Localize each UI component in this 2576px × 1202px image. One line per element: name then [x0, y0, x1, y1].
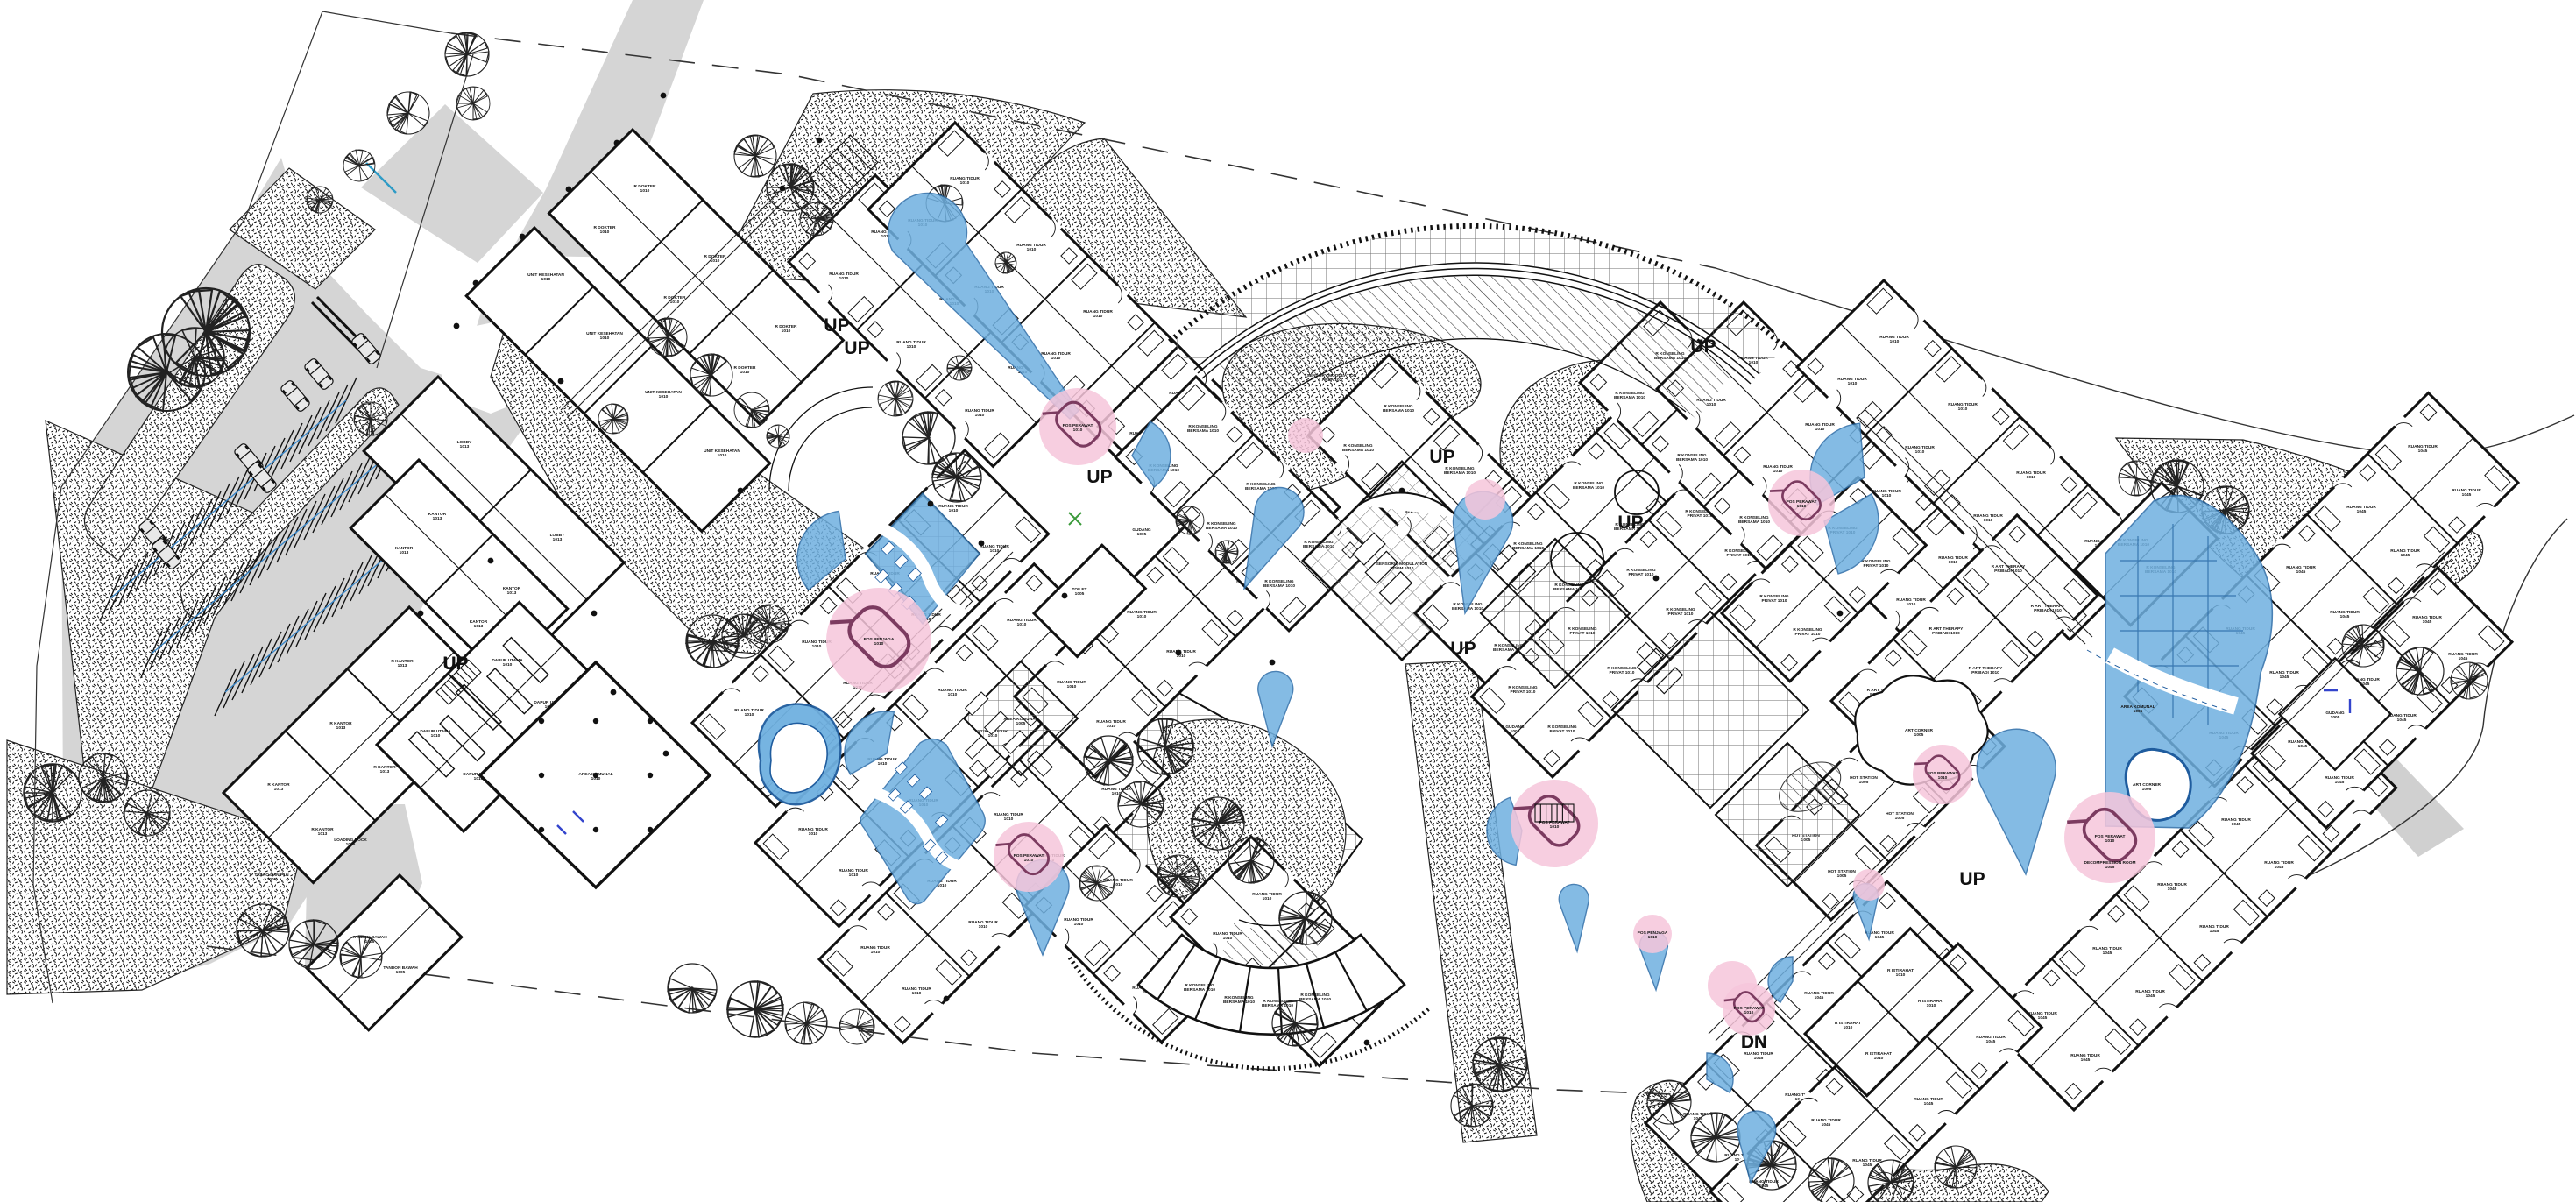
svg-text:UP: UP [1429, 447, 1454, 467]
svg-text:R KONSELINGBERSAMA 1010: R KONSELINGBERSAMA 1010 [1187, 424, 1219, 434]
svg-text:R KONSELINGBERSAMA 1010: R KONSELINGBERSAMA 1010 [1299, 993, 1331, 1002]
svg-text:R KONSELINGPRIVAT 1010: R KONSELINGPRIVAT 1010 [1861, 559, 1891, 569]
svg-text:R KONSELINGBERSAMA 1010: R KONSELINGBERSAMA 1010 [1444, 466, 1476, 476]
svg-text:R KONSELINGPRIVAT 1010: R KONSELINGPRIVAT 1010 [1626, 568, 1656, 577]
svg-text:R KONSELINGPRIVAT 1010: R KONSELINGPRIVAT 1010 [1547, 725, 1577, 734]
svg-text:UP: UP [1617, 513, 1643, 533]
svg-text:R KONSELINGPRIVAT 1010: R KONSELINGPRIVAT 1010 [1666, 607, 1695, 617]
svg-text:R KONSELINGBERSAMA 1010: R KONSELINGBERSAMA 1010 [1263, 579, 1295, 589]
svg-text:UP: UP [1450, 639, 1476, 659]
svg-text:R KONSELINGBERSAMA 1010: R KONSELINGBERSAMA 1010 [1383, 404, 1414, 414]
svg-text:UP: UP [442, 654, 468, 674]
svg-text:DN: DN [1741, 1032, 1767, 1052]
svg-text:R KONSELINGBERSAMA 1010: R KONSELINGBERSAMA 1010 [1223, 995, 1255, 1005]
svg-text:R KONSELINGPRIVAT 1010: R KONSELINGPRIVAT 1010 [1793, 627, 1822, 637]
svg-text:R KONSELINGBERSAMA 1010: R KONSELINGBERSAMA 1010 [1676, 453, 1708, 463]
svg-text:UP: UP [1959, 869, 1985, 889]
svg-text:R KONSELINGBERSAMA 1010: R KONSELINGBERSAMA 1010 [1206, 521, 1237, 531]
svg-text:R KONSELINGBERSAMA 1010: R KONSELINGBERSAMA 1010 [1573, 481, 1604, 491]
svg-text:R KONSELINGPRIVAT 1010: R KONSELINGPRIVAT 1010 [1508, 685, 1538, 695]
svg-text:R ART THERAPYPRIBADI 1010: R ART THERAPYPRIBADI 1010 [1929, 626, 1964, 636]
svg-text:R KONSELINGPRIVAT 1010: R KONSELINGPRIVAT 1010 [1759, 594, 1789, 604]
svg-text:R KONSELINGBERSAMA 1010: R KONSELINGBERSAMA 1010 [1512, 541, 1544, 551]
svg-text:R KONSELINGBERSAMA 1010: R KONSELINGBERSAMA 1010 [1614, 391, 1645, 400]
svg-text:UP: UP [1086, 467, 1112, 487]
svg-text:R KONSELINGBERSAMA 1010: R KONSELINGBERSAMA 1010 [1262, 999, 1293, 1008]
svg-text:UP: UP [844, 338, 869, 358]
svg-text:R KONSELINGPRIVAT 1010: R KONSELINGPRIVAT 1010 [1607, 666, 1637, 675]
svg-text:UP: UP [1690, 336, 1716, 357]
svg-text:UP: UP [824, 315, 849, 336]
svg-text:R KONSELINGBERSAMA 1010: R KONSELINGBERSAMA 1010 [1184, 983, 1215, 993]
svg-text:R KONSELINGBERSAMA 1010: R KONSELINGBERSAMA 1010 [1342, 443, 1374, 453]
svg-text:R KONSELINGBERSAMA 1010: R KONSELINGBERSAMA 1010 [1738, 515, 1770, 525]
svg-text:R ART THERAPYPRIBADI 1010: R ART THERAPYPRIBADI 1010 [1969, 666, 2004, 675]
